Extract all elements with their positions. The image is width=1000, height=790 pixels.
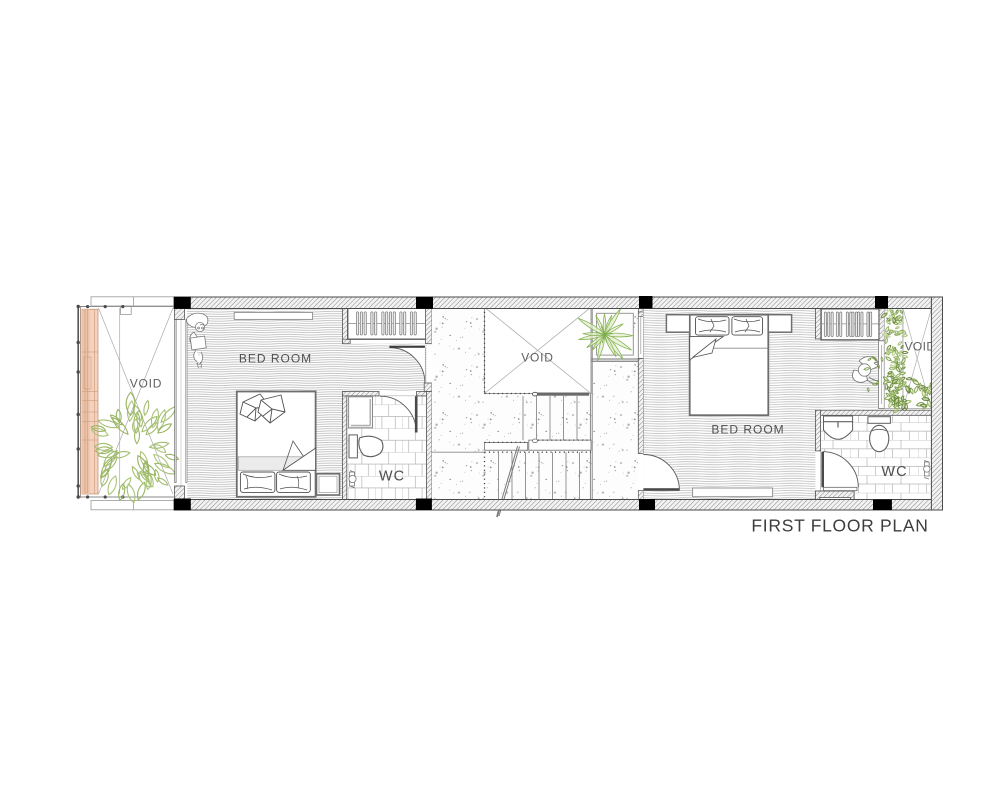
svg-text:WC: WC [881,464,907,480]
svg-text:VOID: VOID [130,377,163,391]
svg-text:BED ROOM: BED ROOM [711,423,784,437]
svg-text:VOID: VOID [521,351,554,365]
svg-text:VOID: VOID [905,340,936,354]
svg-text:FIRST FLOOR PLAN: FIRST FLOOR PLAN [751,516,928,536]
svg-text:BED ROOM: BED ROOM [239,351,312,365]
svg-text:WC: WC [379,469,405,485]
